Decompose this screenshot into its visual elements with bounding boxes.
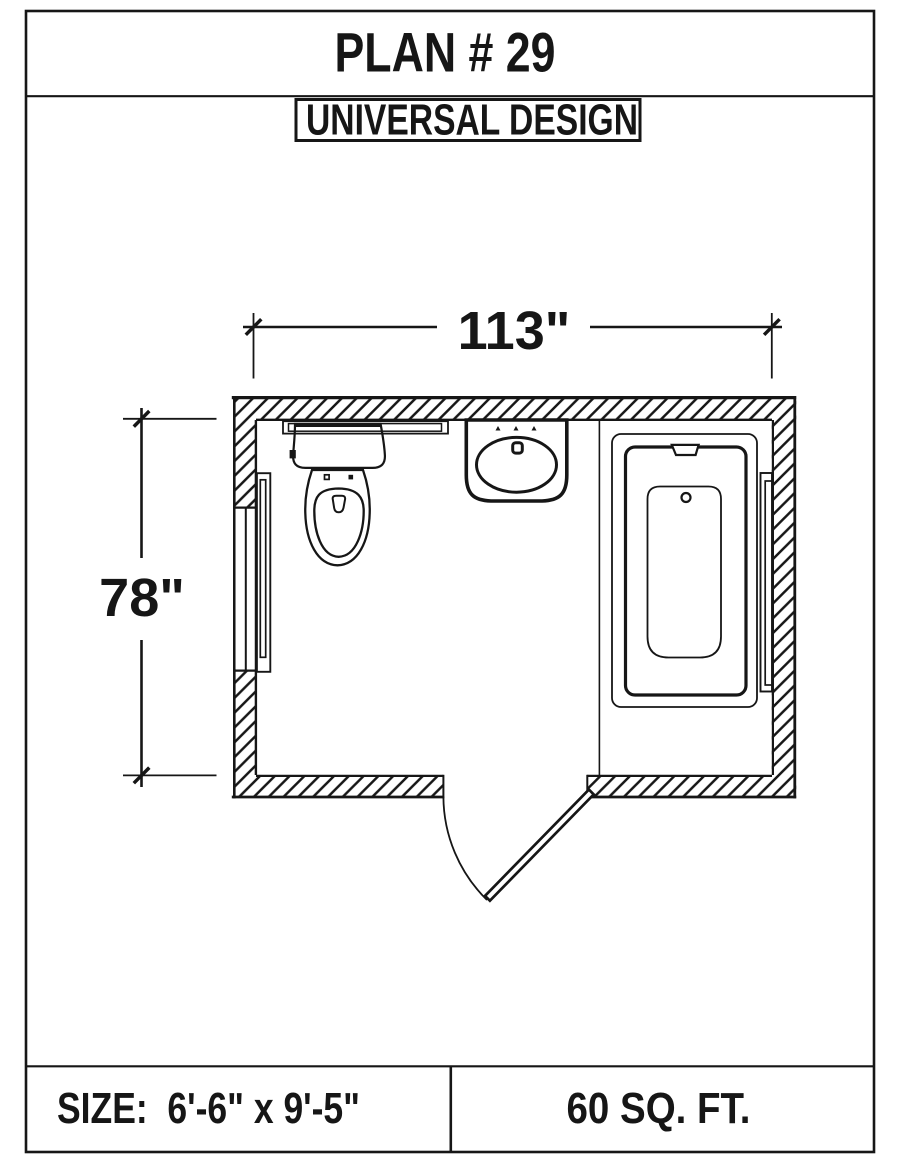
svg-text:PLAN # 29: PLAN # 29 bbox=[335, 21, 556, 84]
svg-text:113": 113" bbox=[458, 301, 571, 361]
svg-text:60 SQ. FT.: 60 SQ. FT. bbox=[567, 1084, 751, 1133]
svg-text:78": 78" bbox=[99, 568, 185, 628]
svg-text:UNIVERSAL DESIGN: UNIVERSAL DESIGN bbox=[306, 96, 638, 145]
svg-text:SIZE: 6'-6" x 9'-5": SIZE: 6'-6" x 9'-5" bbox=[57, 1084, 360, 1133]
